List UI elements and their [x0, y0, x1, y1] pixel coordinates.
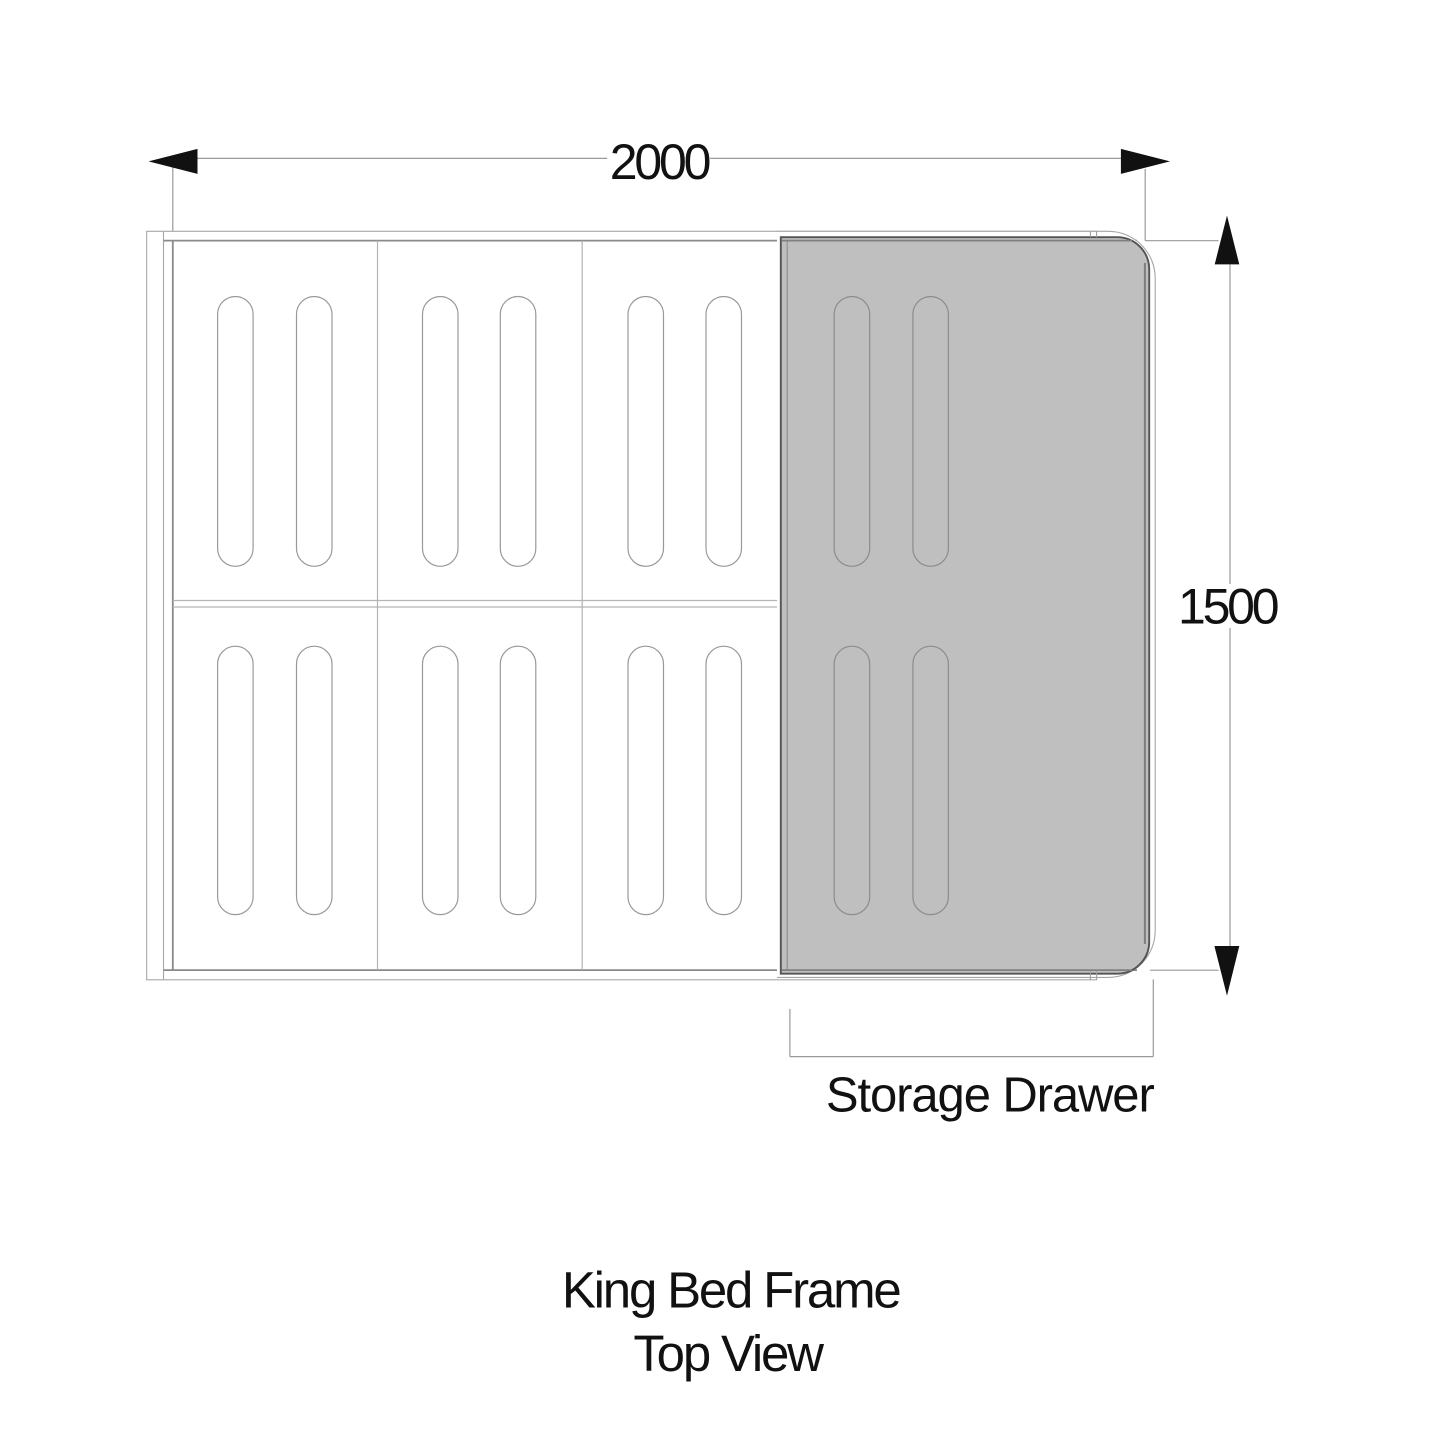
svg-text:2000: 2000: [610, 134, 710, 190]
svg-text:1500: 1500: [1178, 578, 1278, 634]
svg-text:Storage Drawer: Storage Drawer: [826, 1069, 1155, 1123]
svg-text:Top View: Top View: [633, 1325, 824, 1382]
svg-text:King Bed Frame: King Bed Frame: [562, 1261, 901, 1318]
